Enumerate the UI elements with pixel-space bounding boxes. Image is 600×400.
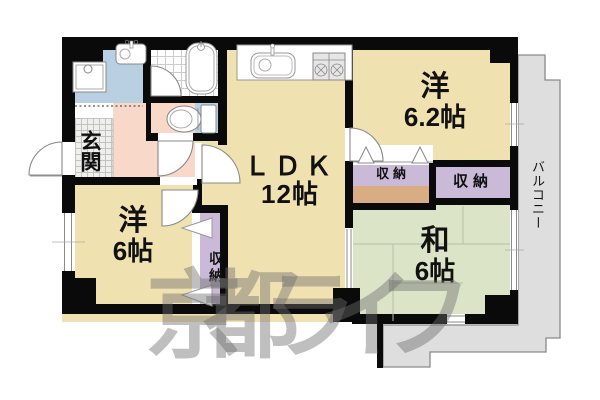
door-opening [160, 177, 197, 185]
wall [193, 133, 227, 141]
wall [345, 40, 353, 128]
window [510, 103, 518, 146]
window [62, 213, 75, 271]
floorplan: ＬＤＫ 12帖 洋 6.2帖 洋 6帖 和 6帖 玄関 収納 収納 収納 バルコ… [0, 0, 600, 400]
entrance-label: 玄関 [72, 122, 100, 180]
watermark-text: 京都ライフ [146, 238, 434, 377]
hallway [113, 103, 195, 183]
ldk-size: 12帖 [230, 180, 350, 208]
closet-right-label: 収納 [436, 174, 510, 190]
wall [143, 40, 151, 103]
ldk-name: ＬＤＫ [230, 152, 350, 180]
western6-name: 洋 [83, 206, 183, 237]
balcony-label: バルコニー [522, 147, 544, 243]
western62-name: 洋 [375, 72, 495, 103]
wall [218, 37, 227, 145]
wall [146, 96, 220, 103]
ldk-label: ＬＤＫ 12帖 [230, 152, 350, 208]
wall [146, 133, 158, 141]
wall [436, 198, 510, 205]
wall [192, 205, 228, 213]
wall [345, 203, 436, 210]
door-opening [195, 143, 202, 179]
door-opening [158, 133, 193, 141]
wall [433, 160, 510, 167]
wall-pillar [490, 37, 518, 63]
western62-size: 6.2帖 [375, 103, 495, 131]
window [510, 210, 518, 290]
wall [510, 146, 518, 210]
western62-label: 洋 6.2帖 [375, 72, 495, 131]
closet-top-label: 収納 [353, 167, 433, 181]
wall-pillar [485, 295, 518, 322]
wall [62, 37, 518, 50]
closet-top-door-strip [353, 145, 433, 165]
window [447, 314, 465, 324]
